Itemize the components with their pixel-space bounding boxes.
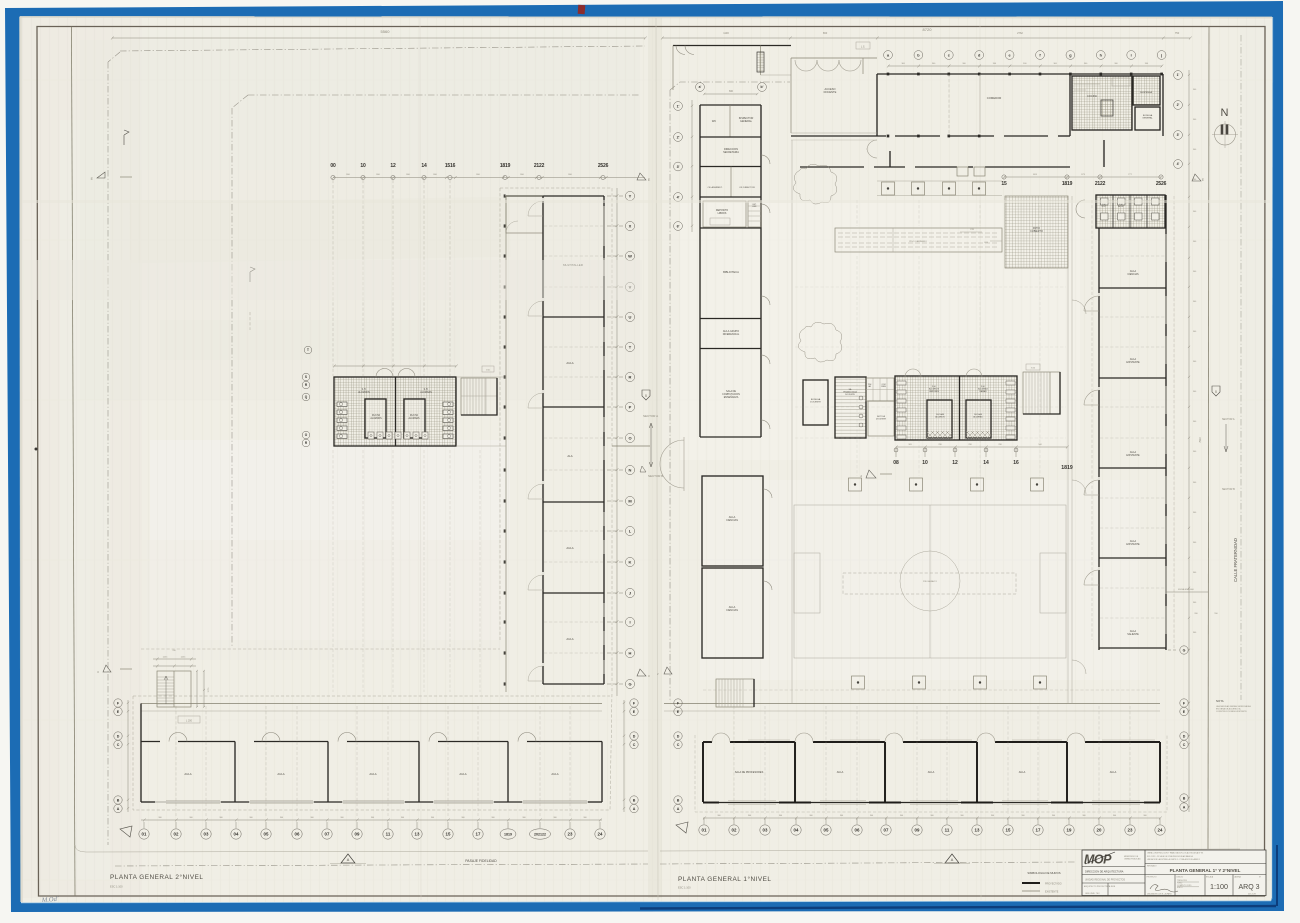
svg-text:b': b' bbox=[761, 85, 764, 89]
svg-text:K: K bbox=[629, 559, 632, 564]
svg-text:BODEGADOCENTE: BODEGADOCENTE bbox=[810, 398, 821, 404]
svg-text:300: 300 bbox=[1193, 301, 1196, 303]
svg-text:D: D bbox=[633, 734, 636, 738]
svg-text:N: N bbox=[1221, 107, 1229, 119]
svg-text:OF. ADMINIST.: OF. ADMINIST. bbox=[708, 186, 723, 189]
svg-text:AULA: AULA bbox=[459, 772, 466, 776]
svg-text:300: 300 bbox=[1193, 602, 1196, 604]
svg-text:07: 07 bbox=[884, 828, 889, 833]
svg-text:2526: 2526 bbox=[598, 163, 609, 169]
svg-text:1819: 1819 bbox=[504, 832, 512, 836]
svg-text:300: 300 bbox=[1193, 179, 1196, 181]
svg-text:AULA: AULA bbox=[928, 771, 935, 774]
svg-text:04: 04 bbox=[794, 828, 799, 833]
svg-text:2762: 2762 bbox=[1017, 31, 1023, 35]
svg-text:13: 13 bbox=[975, 828, 980, 833]
svg-text:300: 300 bbox=[1193, 271, 1196, 273]
svg-text:ROL 1319 - 25 VALE DE: ROL 1319 - 25 VALE DE F°NEVEN ESCUDAR BA… bbox=[1147, 855, 1193, 858]
svg-text:DUCHASALUMNOS: DUCHASALUMNOS bbox=[935, 413, 945, 418]
svg-text:300: 300 bbox=[1193, 211, 1196, 213]
svg-text:300: 300 bbox=[1193, 542, 1196, 544]
svg-text:2122: 2122 bbox=[1095, 181, 1106, 187]
svg-text:B: B bbox=[677, 798, 680, 802]
svg-text:ARQUITECTO PROYECTISTA JEFE: ARQUITECTO PROYECTISTA JEFE bbox=[1084, 885, 1116, 888]
svg-text:AULA: AULA bbox=[1110, 771, 1117, 774]
svg-text:5560: 5560 bbox=[381, 29, 391, 34]
svg-text:02: 02 bbox=[732, 828, 737, 833]
svg-text:17: 17 bbox=[476, 832, 481, 837]
svg-text:UNIDAD REGIONAL DE PROYECTOS: UNIDAD REGIONAL DE PROYECTOS bbox=[1085, 879, 1126, 882]
svg-text:SECTOR A: SECTOR A bbox=[1222, 418, 1235, 421]
svg-text:1130: 1130 bbox=[723, 31, 729, 35]
svg-text:J: J bbox=[629, 590, 631, 595]
svg-text:CALLE FRATERNIDAD: CALLE FRATERNIDAD bbox=[1233, 538, 1238, 582]
svg-text:11: 11 bbox=[386, 832, 391, 837]
svg-text:AULA: AULA bbox=[277, 772, 284, 776]
svg-text:11: 11 bbox=[945, 828, 950, 833]
svg-text:PLANTA GENERAL 1° Y 2°NIVE: PLANTA GENERAL 1° Y 2°NIVEL bbox=[1170, 868, 1241, 873]
svg-text:EXISTENTE: EXISTENTE bbox=[1045, 891, 1059, 894]
svg-text:144.5: 144.5 bbox=[181, 657, 186, 659]
svg-text:JEFE UNID. TEC.: JEFE UNID. TEC. bbox=[1085, 893, 1101, 895]
svg-text:A: A bbox=[1183, 805, 1186, 809]
svg-text:a': a' bbox=[699, 85, 702, 89]
svg-text:L 200: L 200 bbox=[186, 719, 193, 722]
svg-text:3': 3' bbox=[677, 165, 680, 169]
svg-text:4': 4' bbox=[1177, 162, 1180, 166]
svg-text:09: 09 bbox=[915, 828, 920, 833]
svg-text:AULA: AULA bbox=[566, 637, 573, 641]
svg-text:NOTA: NOTA bbox=[1216, 699, 1224, 703]
svg-text:A: A bbox=[677, 807, 680, 811]
svg-text:X: X bbox=[629, 223, 632, 228]
svg-text:DESPENSA: DESPENSA bbox=[1140, 91, 1152, 94]
svg-text:AULA: AULA bbox=[837, 771, 844, 774]
svg-text:REVISADO: REVISADO bbox=[1147, 865, 1157, 868]
svg-text:8720: 8720 bbox=[923, 27, 933, 32]
svg-text:2': 2' bbox=[677, 135, 680, 139]
svg-text:300: 300 bbox=[1193, 451, 1196, 453]
svg-text:D: D bbox=[117, 734, 120, 738]
svg-text:03: 03 bbox=[763, 828, 768, 833]
svg-text:300: 300 bbox=[1193, 572, 1196, 574]
svg-text:300: 300 bbox=[1193, 119, 1196, 121]
svg-text:12: 12 bbox=[390, 163, 396, 169]
svg-text:DIBUJO: DIBUJO bbox=[1177, 877, 1184, 879]
svg-text:01: 01 bbox=[702, 828, 707, 833]
svg-text:300: 300 bbox=[1193, 361, 1196, 363]
svg-text:ALA: ALA bbox=[567, 454, 572, 458]
svg-text:ESC 1:100: ESC 1:100 bbox=[678, 886, 691, 890]
svg-text:300: 300 bbox=[1193, 632, 1196, 634]
svg-text:08: 08 bbox=[893, 460, 899, 466]
svg-text:ACCESODOCENTE: ACCESODOCENTE bbox=[824, 87, 837, 94]
svg-text:P: P bbox=[629, 404, 632, 409]
svg-text:3': 3' bbox=[1177, 133, 1180, 137]
svg-text:T: T bbox=[307, 348, 309, 352]
svg-text:1516: 1516 bbox=[445, 163, 456, 169]
svg-text:OBRA CONSTRUCCION Y HABILITACI: OBRA CONSTRUCCION Y HABILITACION LOCAL E… bbox=[1147, 851, 1203, 854]
svg-text:06: 06 bbox=[295, 832, 300, 837]
svg-text:DIRECCIONSECRETARIA: DIRECCIONSECRETARIA bbox=[723, 148, 739, 154]
svg-text:1': 1' bbox=[677, 104, 680, 108]
svg-text:16: 16 bbox=[1013, 460, 1019, 466]
svg-text:A: A bbox=[633, 807, 636, 811]
svg-text:D: D bbox=[677, 734, 680, 738]
svg-text:Y: Y bbox=[629, 193, 632, 198]
svg-text:B: B bbox=[633, 798, 636, 802]
svg-text:WC: WC bbox=[712, 119, 716, 123]
svg-text:O: O bbox=[628, 435, 631, 440]
svg-text:COMEDOR: COMEDOR bbox=[987, 96, 1002, 100]
svg-text:UBICACION LA ESTRELLA OESTE 1: UBICACION LA ESTRELLA OESTE 1 - POBLACIO… bbox=[1147, 858, 1200, 861]
svg-text:DIBUJANTE LUIS E - ALFARO: DIBUJANTE LUIS E - ALFARO bbox=[1147, 893, 1172, 896]
svg-text:300: 300 bbox=[1193, 331, 1196, 333]
svg-text:750: 750 bbox=[1175, 31, 1180, 35]
svg-text:PISO ASFALTO: PISO ASFALTO bbox=[923, 580, 937, 583]
svg-text:G: G bbox=[628, 681, 631, 686]
svg-text:PROYECTADO: PROYECTADO bbox=[1045, 883, 1062, 886]
svg-text:e: e bbox=[1009, 53, 1011, 57]
svg-text:PROYECTO: PROYECTO bbox=[1147, 877, 1158, 879]
svg-text:300: 300 bbox=[1193, 89, 1196, 91]
svg-text:DUCHASALUMNAS: DUCHASALUMNAS bbox=[973, 413, 983, 418]
svg-text:SECTOR B: SECTOR B bbox=[648, 474, 663, 478]
svg-text:1819: 1819 bbox=[500, 163, 511, 169]
svg-text:D: D bbox=[1183, 734, 1186, 738]
svg-text:LAMINA: LAMINA bbox=[1234, 876, 1241, 879]
svg-text:PLANTA GENERAL 1°NIVEL: PLANTA GENERAL 1°NIVEL bbox=[678, 875, 771, 883]
svg-text:AULA: AULA bbox=[566, 546, 573, 550]
svg-text:1': 1' bbox=[1177, 73, 1180, 77]
svg-text:17: 17 bbox=[1036, 828, 1041, 833]
svg-text:SALA DE PROFESORES: SALA DE PROFESORES bbox=[735, 771, 764, 774]
svg-text:24: 24 bbox=[1158, 828, 1163, 833]
svg-text:24: 24 bbox=[598, 832, 603, 837]
svg-text:1819: 1819 bbox=[1061, 465, 1073, 471]
svg-text:S: S bbox=[305, 375, 307, 379]
svg-text:1:100: 1:100 bbox=[1210, 882, 1228, 891]
svg-text:300: 300 bbox=[1193, 391, 1196, 393]
svg-text:13: 13 bbox=[415, 832, 420, 837]
svg-text:300: 300 bbox=[1193, 482, 1196, 484]
svg-text:02: 02 bbox=[174, 832, 179, 837]
svg-text:300: 300 bbox=[1193, 241, 1196, 243]
svg-text:A: A bbox=[347, 858, 350, 862]
svg-text:I: I bbox=[629, 619, 630, 624]
svg-text:04: 04 bbox=[234, 832, 239, 837]
svg-text:R: R bbox=[629, 374, 632, 379]
svg-text:14: 14 bbox=[983, 460, 989, 466]
svg-text:10: 10 bbox=[922, 460, 928, 466]
svg-text:310: 310 bbox=[172, 650, 175, 652]
svg-text:ESCALERA 1000: ESCALERA 1000 bbox=[1178, 588, 1194, 591]
svg-text:A 14 28: A 14 28 bbox=[1248, 892, 1256, 895]
svg-text:W: W bbox=[628, 253, 632, 258]
svg-text:19: 19 bbox=[1067, 828, 1072, 833]
svg-text:C: C bbox=[1183, 743, 1186, 747]
svg-text:15: 15 bbox=[1001, 181, 1007, 187]
svg-text:07: 07 bbox=[325, 832, 330, 837]
svg-text:ARQ 3: ARQ 3 bbox=[1238, 884, 1259, 891]
svg-text:DIRECCION DE ARQUITECTURA: DIRECCION DE ARQUITECTURA bbox=[1085, 870, 1124, 873]
svg-text:AULA GRUPODIFERENCIAL: AULA GRUPODIFERENCIAL bbox=[723, 330, 740, 336]
svg-text:05: 05 bbox=[264, 832, 269, 837]
svg-text:L.S.: L.S. bbox=[861, 45, 866, 48]
svg-text:N: N bbox=[629, 467, 632, 472]
svg-text:PLANTA GENERAL 2°NIVEL: PLANTA GENERAL 2°NIVEL bbox=[110, 873, 203, 881]
svg-text:j: j bbox=[1160, 53, 1162, 57]
svg-text:B: B bbox=[117, 798, 120, 802]
svg-text:SECTOR A: SECTOR A bbox=[643, 414, 658, 418]
svg-text:1819: 1819 bbox=[1062, 181, 1073, 187]
svg-text:B: B bbox=[1183, 796, 1186, 800]
svg-text:G: G bbox=[1183, 648, 1186, 652]
svg-text:C: C bbox=[677, 743, 680, 747]
svg-text:05: 05 bbox=[824, 828, 829, 833]
svg-text:2': 2' bbox=[1177, 103, 1180, 107]
svg-text:15: 15 bbox=[1006, 828, 1011, 833]
svg-text:U: U bbox=[629, 314, 632, 319]
svg-text:BODEGAGENERAL: BODEGAGENERAL bbox=[1142, 114, 1153, 120]
svg-text:PISO CAMINERO: PISO CAMINERO bbox=[909, 240, 927, 243]
svg-text:AULA: AULA bbox=[184, 772, 191, 776]
svg-text:15: 15 bbox=[446, 832, 451, 837]
svg-text:PASAJE FIDELIDAD: PASAJE FIDELIDAD bbox=[465, 859, 497, 863]
svg-text:i: i bbox=[1131, 53, 1132, 57]
svg-text:H: H bbox=[629, 650, 632, 655]
svg-text:14: 14 bbox=[421, 163, 427, 169]
svg-text:SIMBOLOGIA DE MUROS: SIMBOLOGIA DE MUROS bbox=[1027, 871, 1060, 875]
svg-text:127.5: 127.5 bbox=[208, 688, 210, 693]
svg-text:E: E bbox=[1202, 178, 1204, 182]
svg-text:c: c bbox=[948, 53, 950, 57]
svg-text:09: 09 bbox=[355, 832, 360, 837]
svg-text:300: 300 bbox=[1193, 149, 1196, 151]
svg-text:00: 00 bbox=[330, 163, 336, 169]
svg-text:M.Od´: M.Od´ bbox=[41, 896, 60, 904]
svg-text:20: 20 bbox=[1097, 828, 1102, 833]
svg-text:23: 23 bbox=[1128, 828, 1133, 833]
svg-text:202122: 202122 bbox=[534, 832, 546, 836]
svg-text:4': 4' bbox=[677, 195, 680, 199]
svg-text:7522: 7522 bbox=[1199, 437, 1202, 443]
svg-text:300: 300 bbox=[1193, 421, 1196, 423]
svg-text:BIBLIOTECA: BIBLIOTECA bbox=[723, 270, 739, 274]
svg-text:2122: 2122 bbox=[534, 163, 545, 169]
svg-text:660: 660 bbox=[823, 31, 828, 35]
svg-text:10: 10 bbox=[360, 163, 366, 169]
svg-text:12: 12 bbox=[952, 460, 958, 466]
svg-text:AULA: AULA bbox=[1019, 771, 1026, 774]
svg-text:A: A bbox=[117, 807, 120, 811]
svg-text:COCINA: COCINA bbox=[1087, 94, 1097, 98]
svg-text:A: A bbox=[951, 858, 954, 862]
svg-text:AULA: AULA bbox=[551, 772, 558, 776]
svg-text:AULA: AULA bbox=[369, 772, 376, 776]
svg-text:300: 300 bbox=[1193, 512, 1196, 514]
svg-text:OF. DIRECTOR: OF. DIRECTOR bbox=[739, 187, 755, 189]
svg-text:23: 23 bbox=[568, 832, 573, 837]
svg-text:C: C bbox=[117, 743, 120, 747]
svg-text:660: 660 bbox=[729, 90, 734, 93]
svg-text:N°: N° bbox=[1259, 877, 1261, 879]
svg-text:C: C bbox=[633, 743, 636, 747]
svg-text:SECTOR B: SECTOR B bbox=[1222, 488, 1235, 491]
svg-text:AULA: AULA bbox=[566, 361, 573, 365]
svg-text:2526: 2526 bbox=[1156, 181, 1167, 187]
svg-text:INSPECTORGENERAL: INSPECTORGENERAL bbox=[739, 117, 754, 123]
svg-text:ESCALA: ESCALA bbox=[1206, 876, 1214, 879]
svg-text:06: 06 bbox=[855, 828, 860, 833]
svg-text:ESC 1:100: ESC 1:100 bbox=[110, 885, 123, 889]
svg-text:144.5: 144.5 bbox=[163, 657, 168, 659]
svg-text:03: 03 bbox=[204, 832, 209, 837]
svg-text:6': 6' bbox=[677, 224, 680, 228]
svg-text:01: 01 bbox=[142, 832, 147, 837]
